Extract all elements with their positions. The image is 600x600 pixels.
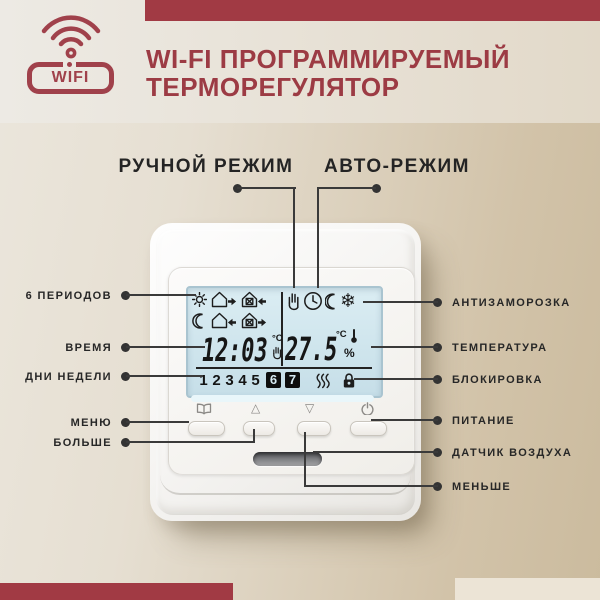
house-service-exit-arrow-icon xyxy=(241,312,267,329)
temperature-unit: °C xyxy=(336,329,347,340)
power-button xyxy=(350,421,387,436)
label-auto-mode: АВТО-РЕЖИМ xyxy=(297,156,497,178)
callout-line xyxy=(237,187,296,189)
day-2: 2 xyxy=(210,372,223,389)
callout-line xyxy=(371,346,438,348)
label-antifreeze: АНТИЗАМОРОЗКА xyxy=(452,297,571,309)
wifi-connector-dot xyxy=(67,62,72,67)
hand-manual-icon xyxy=(287,292,301,311)
air-sensor-slot xyxy=(253,452,322,466)
lcd-screen: ❄ 12:03 °C 27.5 °C % 1 2 3 xyxy=(186,286,383,398)
house-service-enter-arrow-icon xyxy=(241,291,267,308)
label-menu: МЕНЮ xyxy=(0,417,112,429)
callout-line xyxy=(126,294,196,296)
wifi-logo: WIFI xyxy=(26,10,126,100)
callout-line xyxy=(293,187,295,288)
heating-waves-icon xyxy=(315,372,330,389)
hand-small-icon xyxy=(272,346,283,360)
label-temperature: ТЕМПЕРАТУРА xyxy=(452,342,548,354)
page-title: WI-FI ПРОГРАММИРУЕМЫЙ ТЕРМОРЕГУЛЯТОР xyxy=(146,45,510,101)
label-lock: БЛОКИРОВКА xyxy=(452,374,543,386)
moon-night-icon xyxy=(325,293,338,310)
infographic-page: WIFI WI-FI ПРОГРАММИРУЕМЫЙ ТЕРМОРЕГУЛЯТО… xyxy=(0,0,600,600)
callout-line xyxy=(363,301,438,303)
menu-button xyxy=(188,421,225,436)
callout-line xyxy=(317,187,319,288)
lcd-backlight-strip xyxy=(191,395,374,402)
bottom-red-bar xyxy=(0,583,233,600)
day-5: 5 xyxy=(249,372,262,389)
callout-line xyxy=(313,451,438,453)
snowflake-icon: ❄ xyxy=(340,292,356,311)
lcd-time: 12:03 xyxy=(200,334,269,366)
callout-line xyxy=(354,378,438,380)
label-weekdays: ДНИ НЕДЕЛИ xyxy=(0,371,112,383)
label-time: ВРЕМЯ xyxy=(0,342,112,354)
up-button xyxy=(243,421,275,436)
label-power: ПИТАНИЕ xyxy=(452,415,515,427)
menu-book-icon xyxy=(196,403,212,415)
callout-line xyxy=(126,421,189,423)
callout-line xyxy=(304,485,438,487)
house-exit-arrow-icon xyxy=(211,291,237,308)
callout-line xyxy=(304,432,306,487)
humidity-unit: % xyxy=(344,346,355,360)
day-6-active: 6 xyxy=(266,372,281,388)
status-icons: ❄ xyxy=(287,290,356,312)
period-icons xyxy=(192,289,267,331)
power-icon xyxy=(361,402,374,415)
thermometer-icon xyxy=(350,328,358,344)
callout-line xyxy=(126,375,203,377)
callout-line xyxy=(126,441,255,443)
callout-line xyxy=(126,346,205,348)
arrow-up-icon: △ xyxy=(251,402,260,414)
top-red-bar xyxy=(145,0,600,21)
callout-line xyxy=(318,187,376,189)
callout-line xyxy=(371,419,438,421)
label-manual-mode: РУЧНОЙ РЕЖИМ xyxy=(106,156,306,178)
label-air-sensor: ДАТЧИК ВОЗДУХА xyxy=(452,447,572,459)
house-enter-arrow-icon xyxy=(211,312,237,329)
bottom-right-block xyxy=(455,578,600,600)
lcd-temperature: 27.5 xyxy=(283,333,339,365)
label-less: МЕНЬШЕ xyxy=(452,481,511,493)
day-3: 3 xyxy=(223,372,236,389)
title-line1: WI-FI ПРОГРАММИРУЕМЫЙ xyxy=(146,45,510,73)
label-more: БОЛЬШЕ xyxy=(0,437,112,449)
day-4: 4 xyxy=(236,372,249,389)
callout-line xyxy=(253,429,255,443)
clock-icon xyxy=(303,291,323,311)
title-line2: ТЕРМОРЕГУЛЯТОР xyxy=(146,73,510,101)
arrow-down-icon: ▽ xyxy=(305,402,314,414)
time-unit: °C xyxy=(272,333,283,344)
day-7-active: 7 xyxy=(285,372,300,388)
wifi-signal-icon xyxy=(40,10,102,64)
down-button xyxy=(297,421,331,436)
thermostat-device: ❄ 12:03 °C 27.5 °C % 1 2 3 xyxy=(150,223,421,521)
weekday-row: 1 2 3 4 5 6 7 xyxy=(197,370,356,390)
label-6-periods: 6 ПЕРИОДОВ xyxy=(0,290,112,302)
moon-icon xyxy=(192,313,207,329)
